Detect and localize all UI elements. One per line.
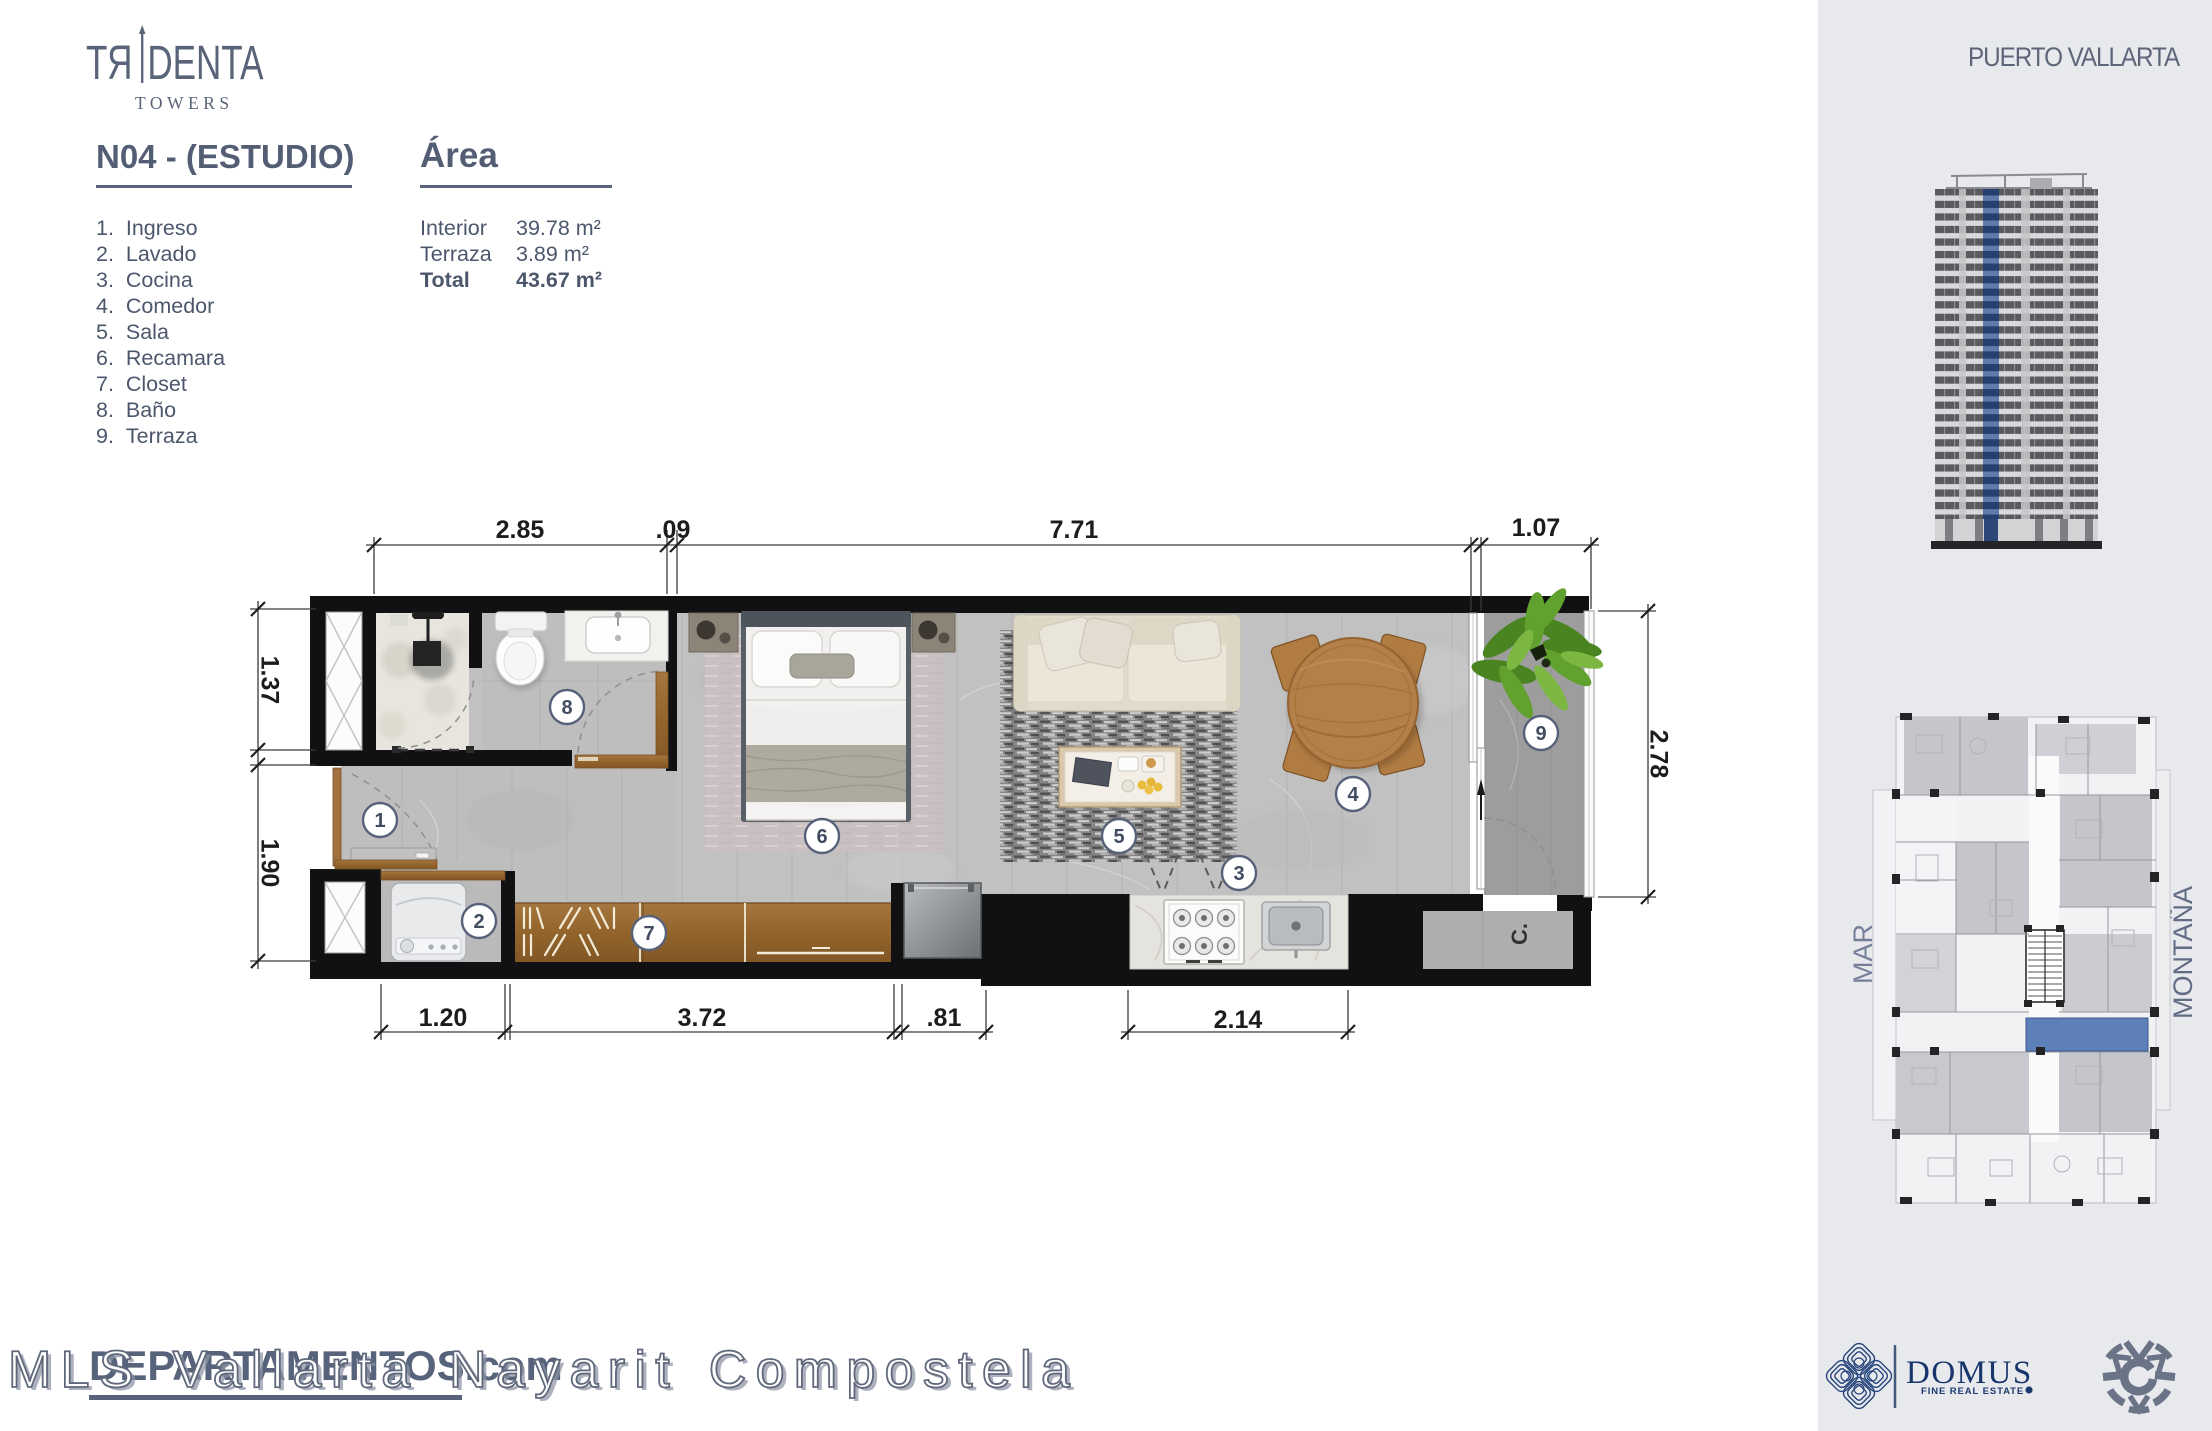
svg-text:FINE REAL ESTATE: FINE REAL ESTATE — [1921, 1386, 2024, 1397]
